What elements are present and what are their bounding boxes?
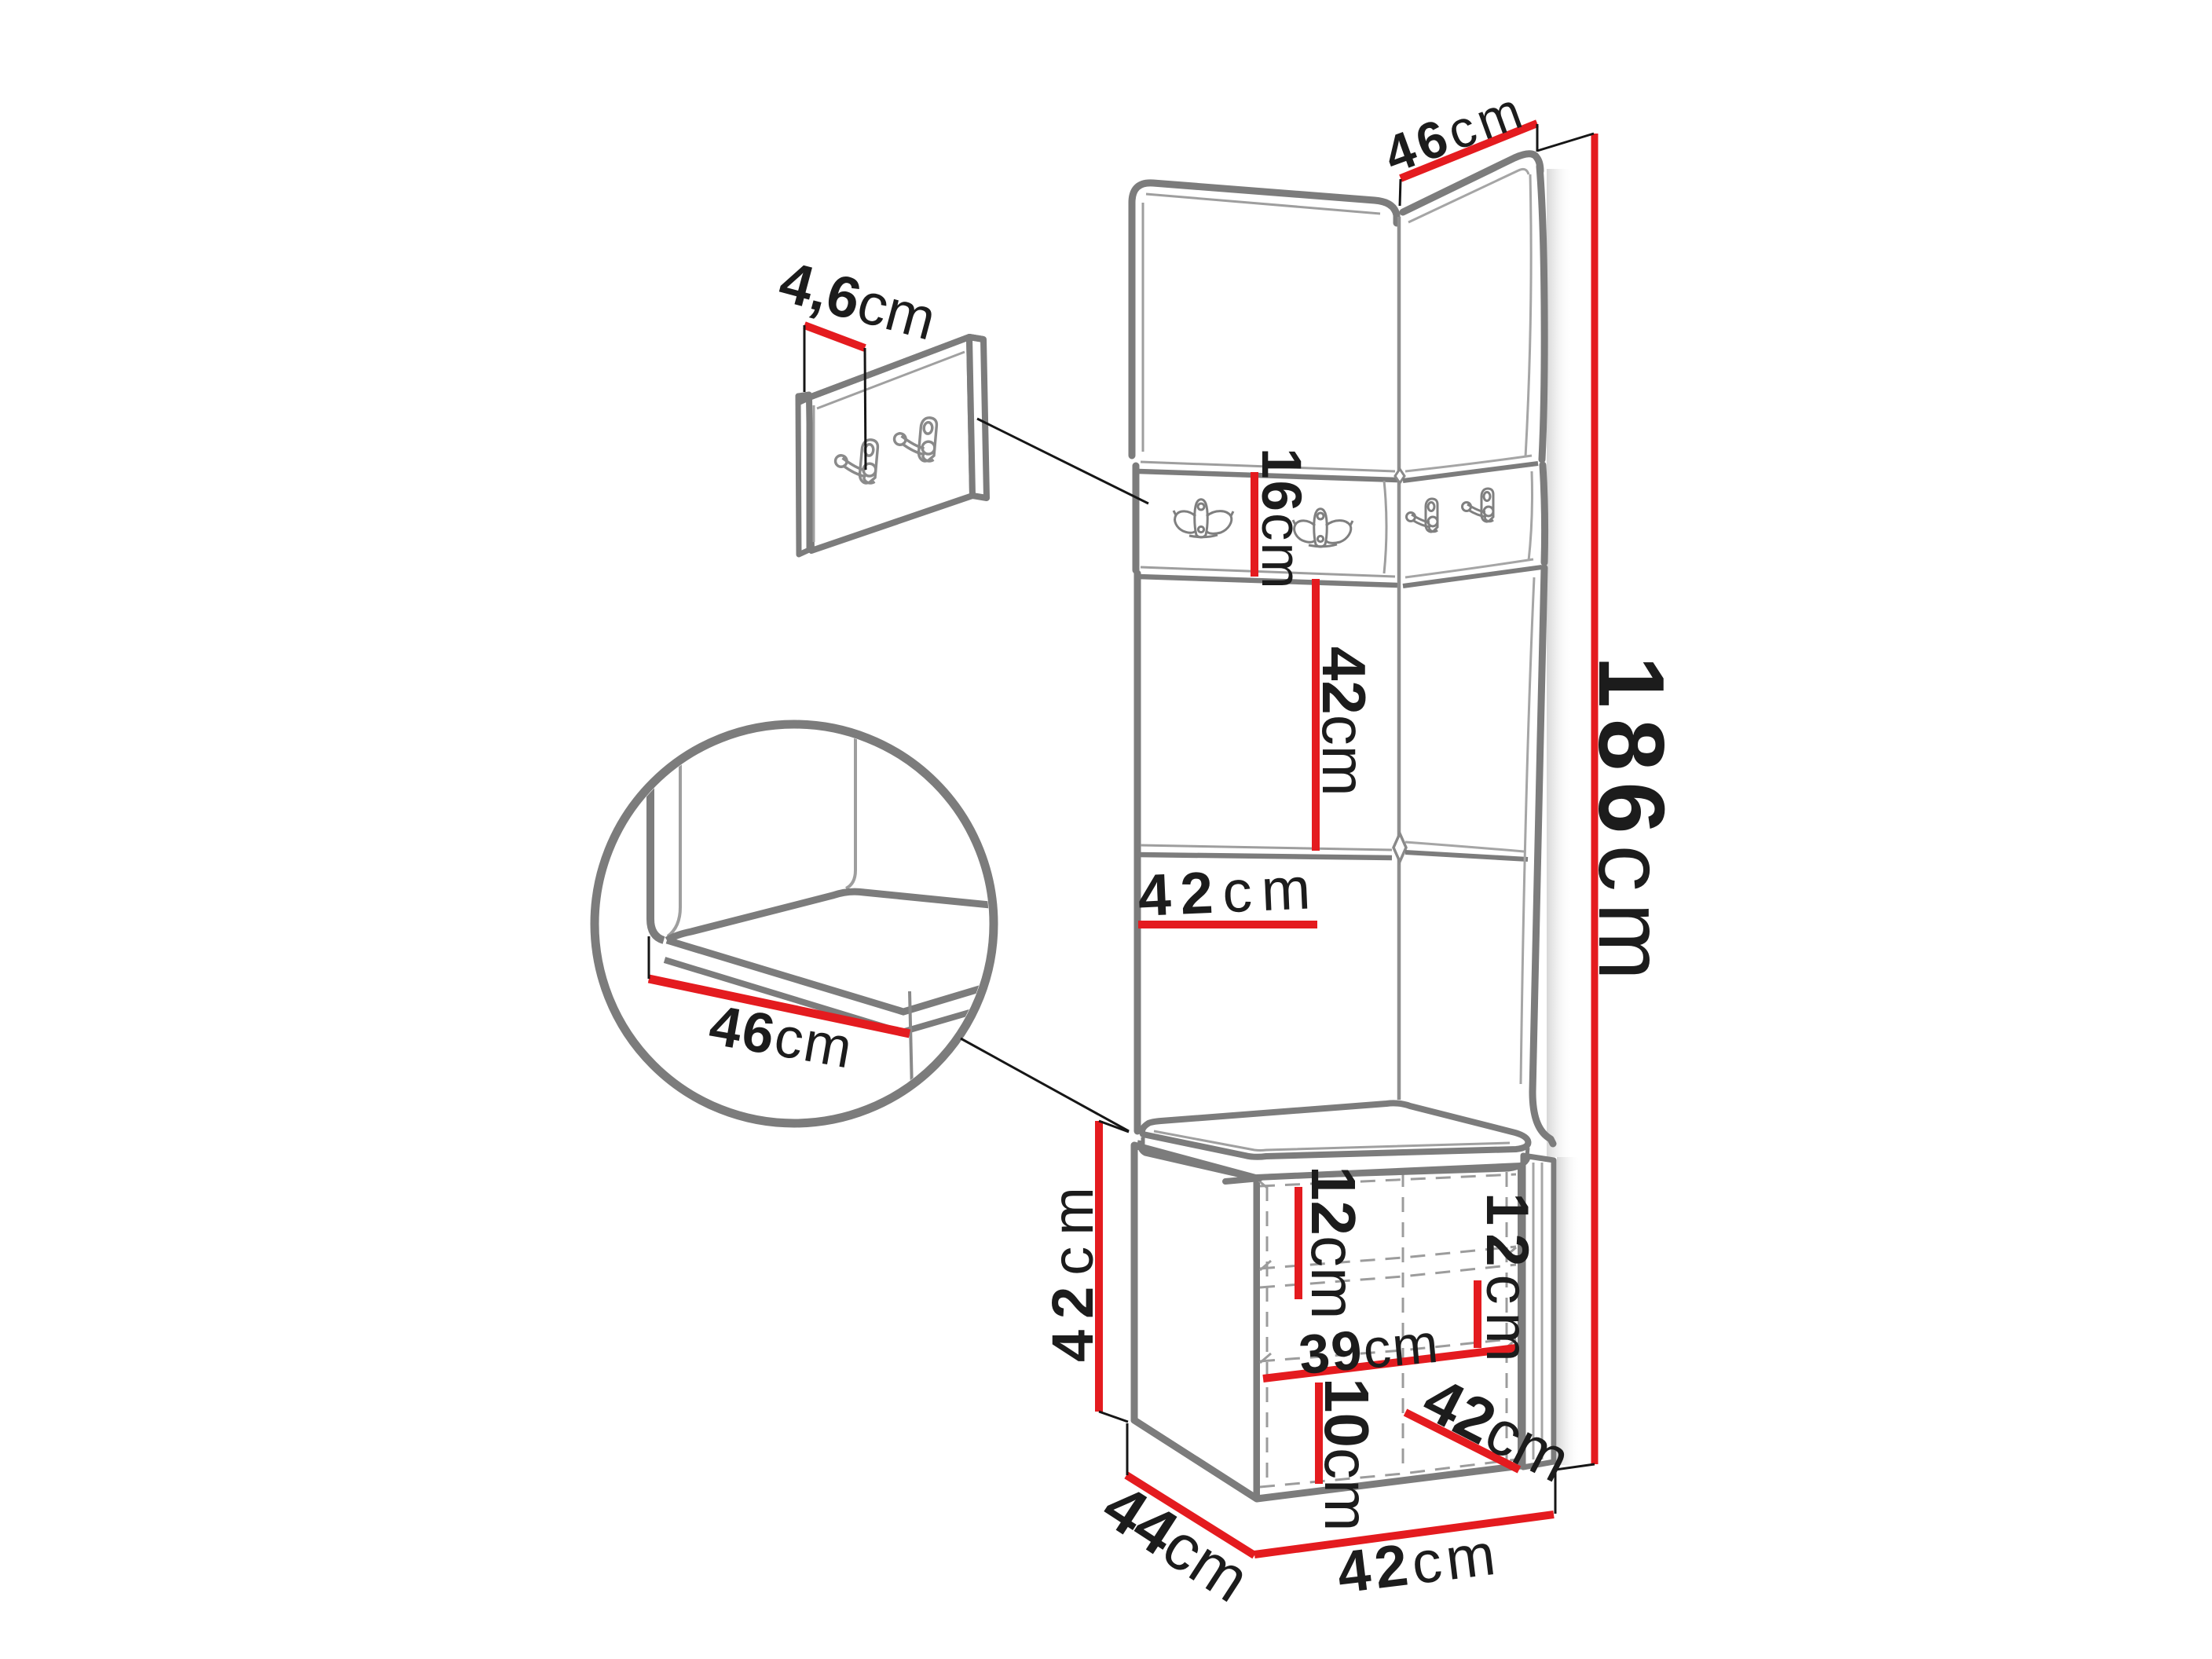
svg-text:42cm: 42cm <box>1309 646 1379 797</box>
svg-text:39cm: 39cm <box>1297 1313 1442 1386</box>
svg-text:12cm: 12cm <box>1298 1166 1368 1320</box>
svg-text:10cm: 10cm <box>1312 1378 1382 1532</box>
svg-text:42cm: 42cm <box>1040 1176 1105 1362</box>
svg-text:186cm: 186cm <box>1579 656 1683 991</box>
svg-text:16cm: 16cm <box>1250 448 1312 591</box>
svg-text:12cm: 12cm <box>1474 1192 1540 1370</box>
svg-text:42cm: 42cm <box>1137 855 1321 928</box>
